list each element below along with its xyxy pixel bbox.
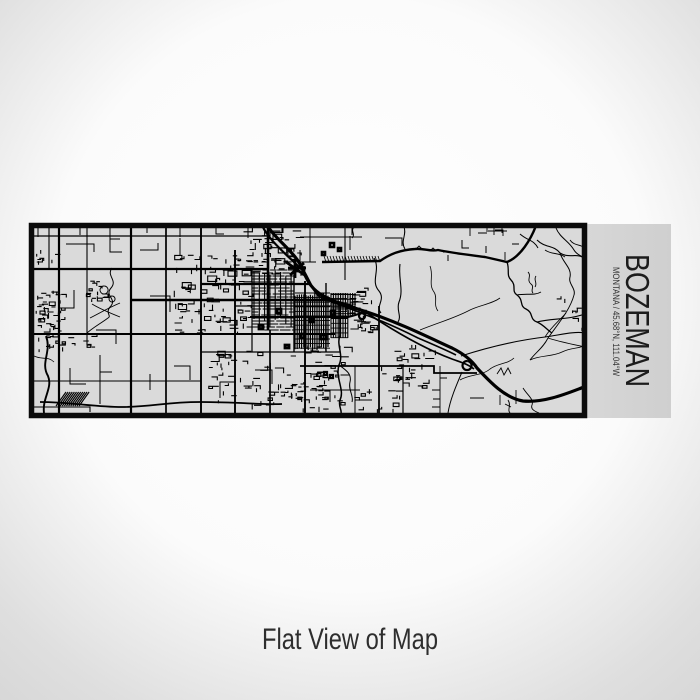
svg-text:BOZEMAN: BOZEMAN: [619, 254, 656, 387]
svg-text:Flat View of Map: Flat View of Map: [262, 623, 438, 656]
svg-text:MONTANA / 45.68°N, 111.04°W: MONTANA / 45.68°N, 111.04°W: [611, 267, 621, 376]
